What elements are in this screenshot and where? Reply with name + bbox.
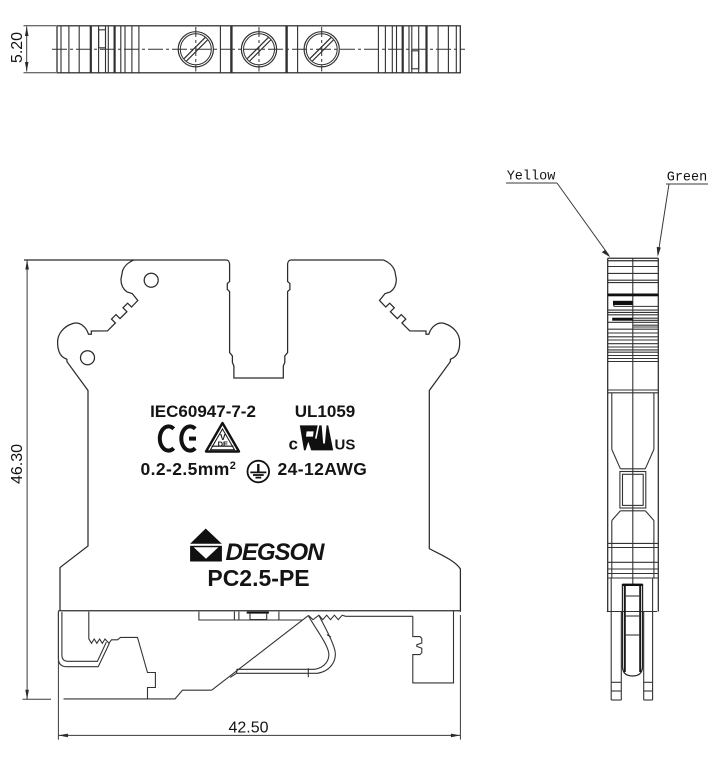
svg-text:Yellow: Yellow [507, 170, 556, 185]
svg-text:46.30: 46.30 [9, 444, 26, 484]
svg-text:0.2-2.5mm2: 0.2-2.5mm2 [141, 459, 237, 479]
svg-text:DE: DE [218, 439, 228, 448]
svg-text:c: c [289, 435, 298, 454]
svg-text:US: US [335, 437, 356, 454]
svg-text:Green: Green [667, 171, 708, 186]
svg-text:IEC60947-7-2: IEC60947-7-2 [150, 402, 256, 421]
svg-text:UL1059: UL1059 [295, 402, 355, 421]
svg-text:PC2.5-PE: PC2.5-PE [207, 565, 309, 591]
svg-text:5.20: 5.20 [9, 32, 26, 63]
svg-text:DEGSON: DEGSON [226, 539, 326, 566]
svg-text:42.50: 42.50 [228, 720, 268, 737]
svg-text:24-12AWG: 24-12AWG [278, 459, 368, 479]
